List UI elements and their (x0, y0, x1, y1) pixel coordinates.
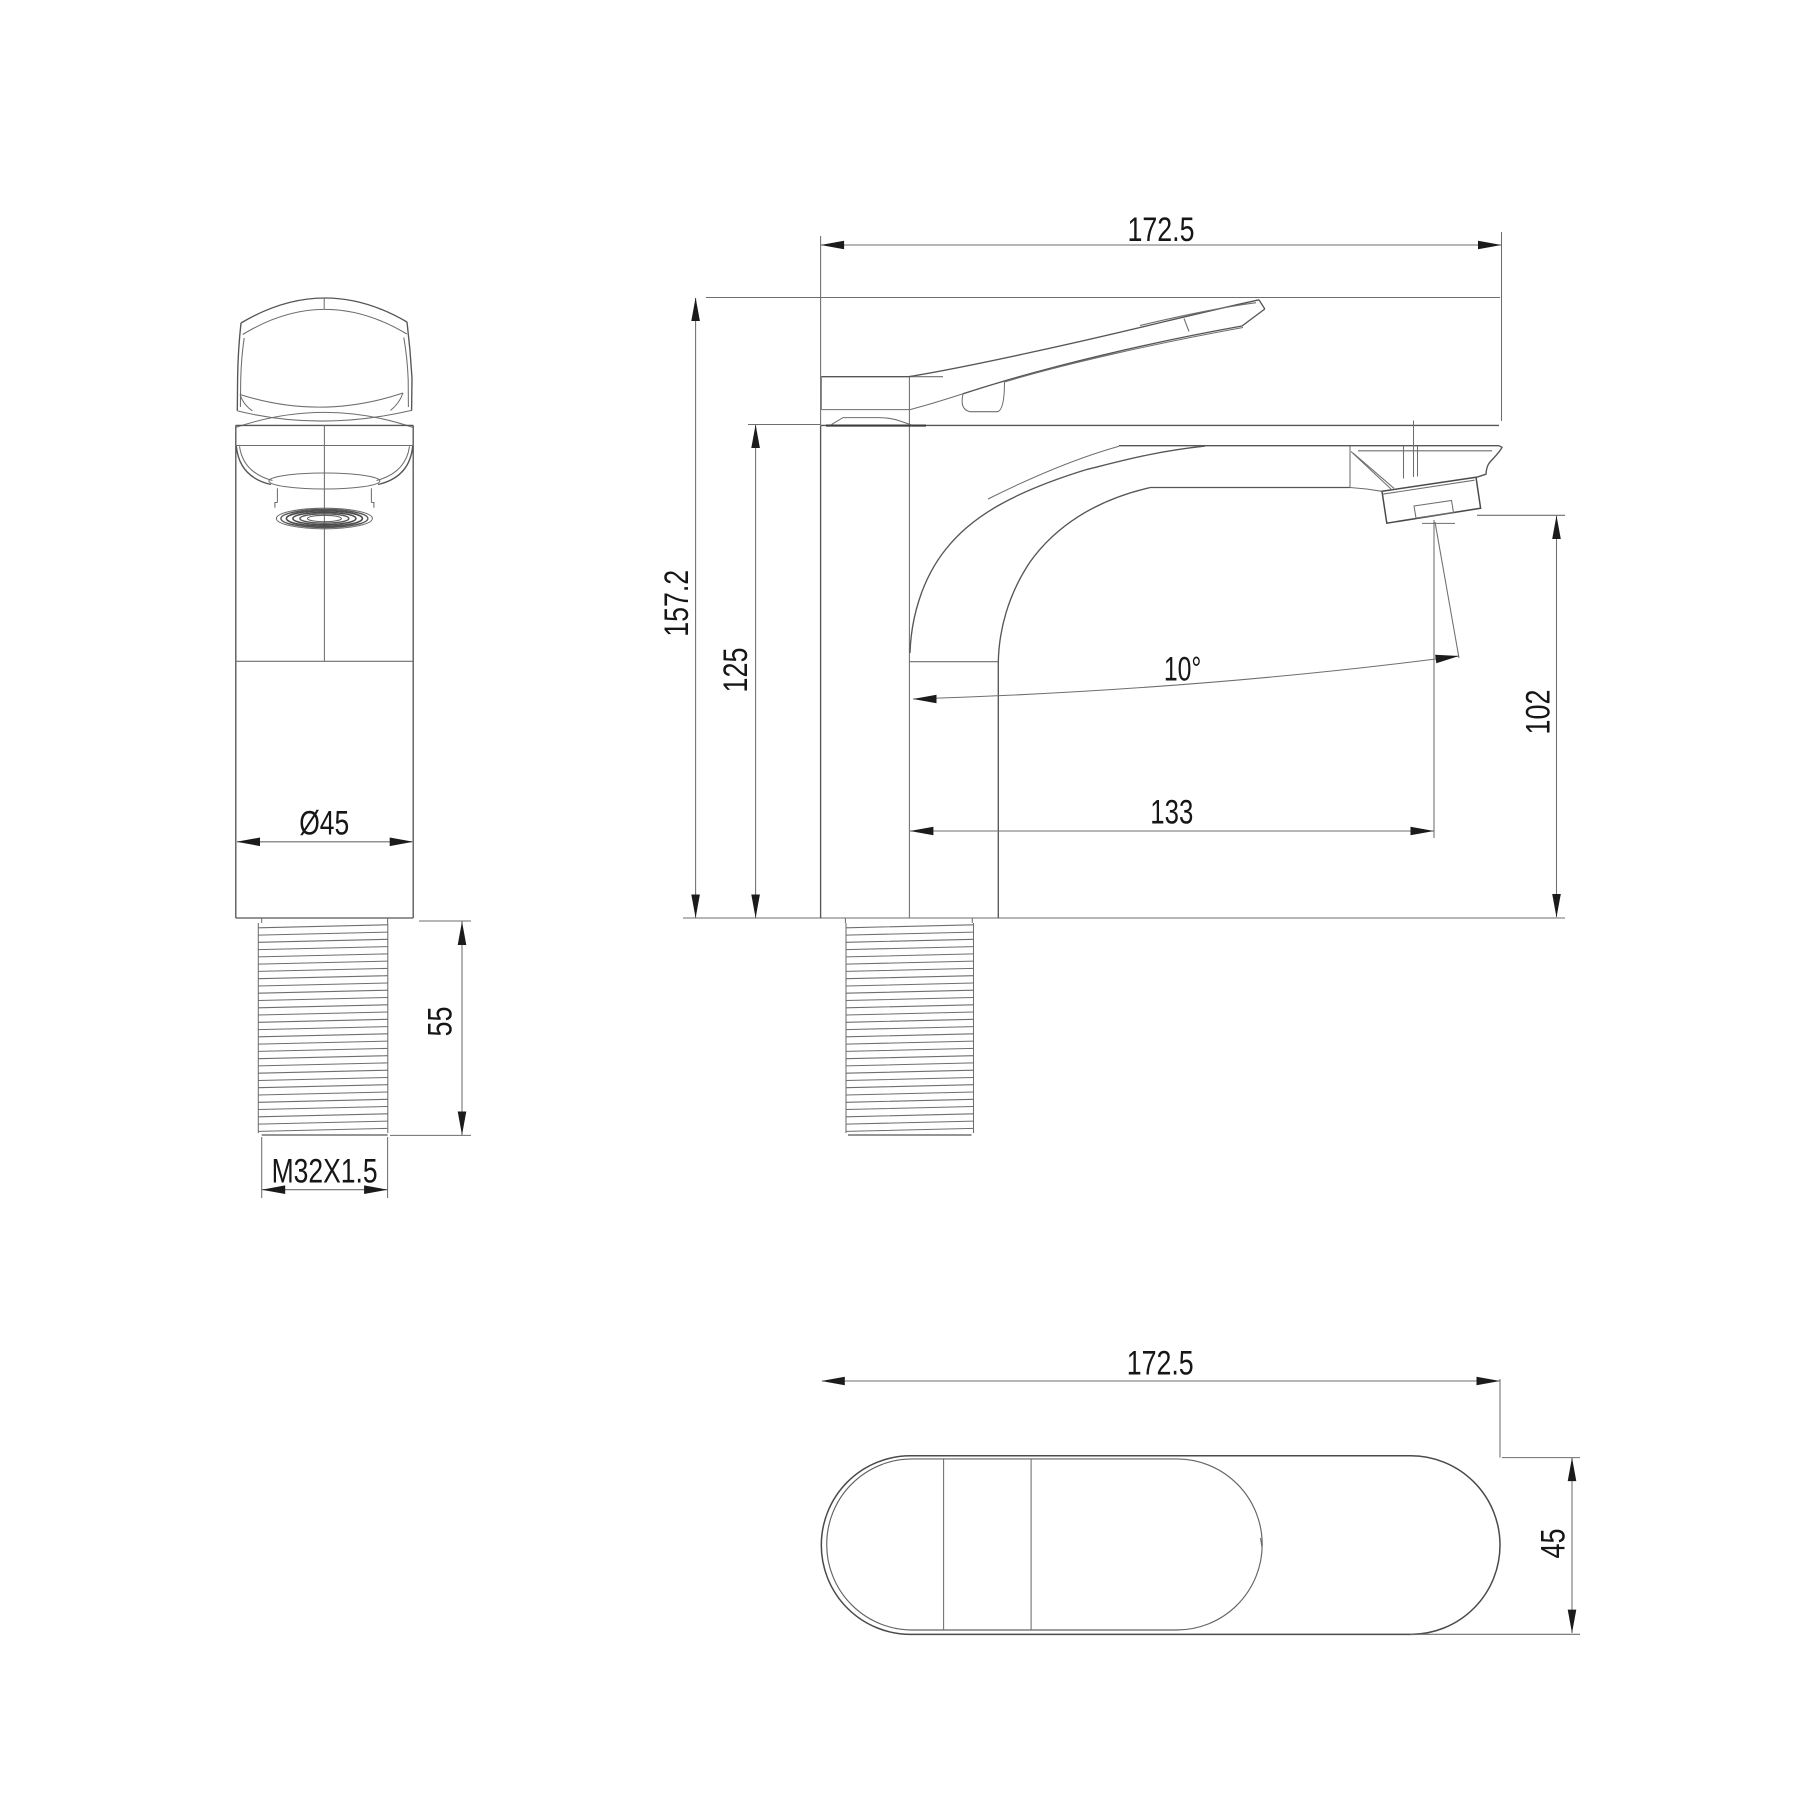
svg-text:10°: 10° (1164, 650, 1202, 688)
svg-text:172.5: 172.5 (1127, 1345, 1194, 1383)
svg-text:M32X1.5: M32X1.5 (272, 1153, 378, 1191)
svg-text:172.5: 172.5 (1128, 211, 1195, 249)
svg-text:45: 45 (1535, 1529, 1573, 1559)
svg-text:Ø45: Ø45 (299, 805, 349, 843)
svg-text:55: 55 (422, 1007, 460, 1037)
svg-text:157.2: 157.2 (658, 570, 696, 637)
svg-text:125: 125 (717, 648, 755, 693)
svg-text:102: 102 (1520, 690, 1558, 735)
svg-text:133: 133 (1150, 794, 1193, 832)
